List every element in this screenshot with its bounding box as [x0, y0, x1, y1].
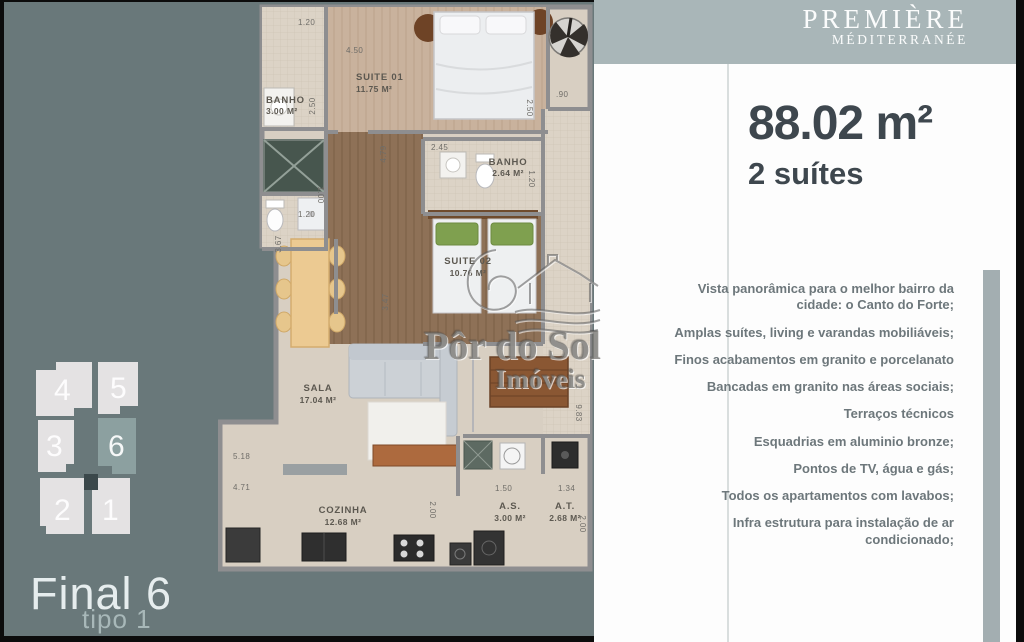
dim-label: 1.20	[298, 210, 315, 219]
brand-logo: PREMIÈRE MÉDITERRANÉE	[802, 5, 968, 48]
right-accent-bar	[983, 270, 1000, 642]
feature-list: Vista panorâmica para o melhor bairro da…	[674, 281, 954, 548]
room-area-suite2: 10.76 M²	[450, 268, 487, 278]
unit-number: 3	[46, 430, 63, 463]
feature-item: Vista panorâmica para o melhor bairro da…	[674, 281, 954, 314]
dim-label: 4.79	[379, 145, 388, 162]
room-label-banho2: BANHO	[489, 157, 528, 168]
apartment-floor-plan: BANHO 3.00 M² SUITE 01 11.75 M² BANHO 2.…	[218, 4, 596, 574]
feature-item: Esquadrias em aluminio bronze;	[754, 434, 954, 450]
feature-item: Terraços técnicos	[844, 406, 954, 422]
dim-label: 1.34	[558, 484, 575, 493]
brand-line2: MÉDITERRANÉE	[802, 33, 968, 48]
varanda-cabinet	[490, 357, 568, 407]
room-area-at: 2.68 M²	[549, 513, 581, 523]
dim-label: 1.00	[316, 186, 325, 203]
dim-label: .90	[556, 90, 568, 99]
room-area-banho2: 2.64 M²	[492, 168, 524, 178]
room-label-banho1: BANHO	[266, 95, 305, 106]
room-label-suite2: SUITE 02	[444, 256, 492, 267]
unit-number: 2	[54, 494, 71, 527]
room-label-as: A.S.	[499, 501, 521, 512]
feature-item: Bancadas em granito nas áreas sociais;	[707, 379, 954, 395]
dim-label: 3.47	[381, 293, 390, 310]
keyplan-core	[84, 474, 98, 490]
unit-number: 6	[108, 430, 125, 463]
hall-floor	[326, 132, 423, 344]
room-area-banho1: 3.00 M²	[266, 106, 298, 116]
dim-label: 2.00	[578, 515, 587, 532]
room-label-sala: SALA	[303, 383, 332, 394]
elevator-shaft	[264, 140, 324, 192]
service-area-fixtures	[464, 441, 578, 469]
room-label-suite1: SUITE 01	[356, 72, 404, 83]
unit-suites: 2 suítes	[748, 156, 932, 192]
room-label-at: A.T.	[555, 501, 575, 512]
dim-label: 5.18	[233, 452, 250, 461]
feature-item: Infra estrutura para instalação de ar co…	[674, 515, 954, 548]
unit-number: 5	[110, 372, 127, 405]
unit-summary: 88.02 m² 2 suítes	[748, 100, 932, 192]
dim-label: 4.50	[346, 46, 363, 55]
tv-console	[373, 445, 459, 466]
feature-item: Todos os apartamentos com lavabos;	[722, 488, 954, 504]
feature-item: Finos acabamentos em granito e porcelana…	[674, 352, 954, 368]
feature-item: Amplas suítes, living e varandas mobiliá…	[674, 325, 954, 341]
dim-label: 2.50	[525, 99, 534, 116]
dim-label: 2.50	[308, 97, 317, 114]
kitchen-counter	[283, 464, 347, 475]
room-area-suite1: 11.75 M²	[356, 84, 392, 94]
dim-label: 9.83	[574, 404, 583, 421]
brand-band: PREMIÈRE MÉDITERRANÉE	[594, 0, 1016, 64]
unit-number: 1	[102, 494, 119, 527]
unit-number: 4	[54, 374, 71, 407]
feature-item: Pontos de TV, água e gás;	[793, 461, 954, 477]
brand-line1: PREMIÈRE	[802, 5, 968, 33]
room-label-cozinha: COZINHA	[319, 505, 368, 516]
dim-label: 1.50	[495, 484, 512, 493]
right-info-panel: PREMIÈRE MÉDITERRANÉE 88.02 m² 2 suítes …	[594, 0, 1016, 642]
unit-type-label: tipo 1	[82, 604, 152, 635]
dim-label: 1.20	[527, 170, 536, 187]
dim-label: 2.45	[431, 143, 448, 152]
unit-area: 88.02 m²	[748, 100, 932, 148]
room-area-sala: 17.04 M²	[300, 395, 337, 405]
dim-label: 4.71	[233, 483, 250, 492]
room-area-as: 3.00 M²	[494, 513, 526, 523]
room-area-cozinha: 12.68 M²	[325, 517, 362, 527]
floorplan-marketing-image: 4 5 3 6 2 1 Final 6 tipo 1	[0, 0, 1024, 642]
building-keyplan: 4 5 3 6 2 1	[26, 360, 186, 540]
dim-label: 3.67	[274, 235, 283, 252]
dim-label: 2.00	[428, 501, 437, 518]
dim-label: 1.20	[298, 18, 315, 27]
